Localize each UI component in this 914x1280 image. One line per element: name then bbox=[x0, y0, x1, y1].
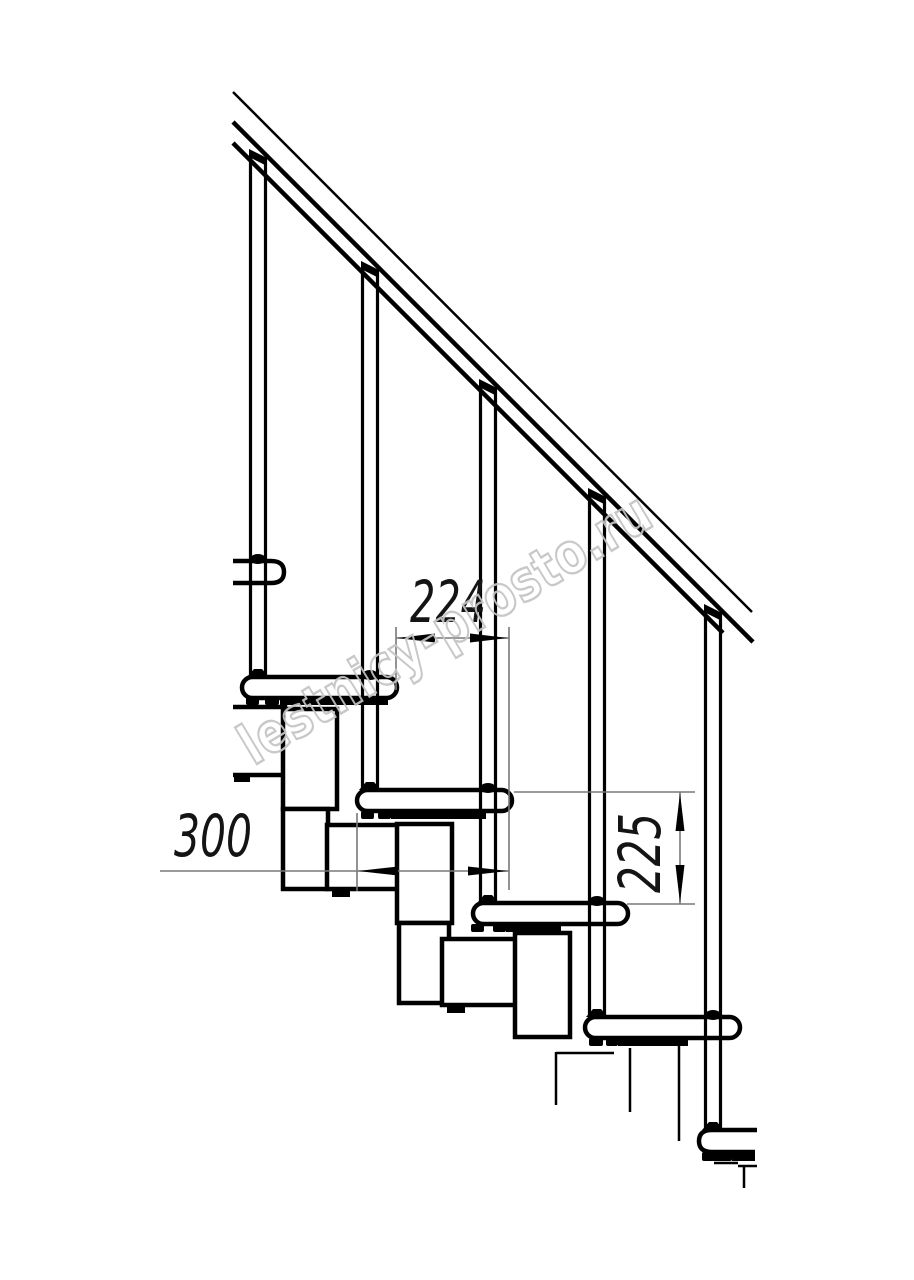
module-horizontal-2 bbox=[442, 939, 518, 1005]
handrail-top-thin-line bbox=[233, 92, 752, 612]
step-0-partial bbox=[233, 561, 284, 583]
module-corner-1 bbox=[283, 809, 328, 889]
handrail-band-bottom-edge bbox=[233, 143, 723, 633]
module-tab bbox=[447, 1006, 465, 1013]
step-nose-connector bbox=[480, 783, 496, 793]
staircase-drawing: 224 300 225 lestnicy-prosto.ru bbox=[0, 0, 914, 1280]
arrowhead-down bbox=[676, 865, 685, 903]
step-nose-connector bbox=[250, 554, 266, 564]
step-4 bbox=[585, 1017, 740, 1038]
module-tab bbox=[332, 890, 350, 897]
step-nose-connector bbox=[705, 1010, 721, 1020]
module-vertical-2 bbox=[397, 824, 452, 923]
step-nose-connector bbox=[589, 896, 605, 906]
module-horizontal-1 bbox=[327, 825, 405, 889]
step-2 bbox=[357, 790, 512, 811]
baluster-5 bbox=[702, 604, 724, 1130]
arrowhead-right bbox=[468, 867, 508, 876]
arrowhead-up bbox=[676, 793, 685, 831]
dimension-label-300: 300 bbox=[174, 802, 252, 870]
step-5-partial bbox=[699, 1130, 757, 1152]
module-vertical-3 bbox=[515, 933, 570, 1037]
baluster-1 bbox=[247, 149, 269, 677]
cropped-continuation-lines bbox=[556, 1041, 757, 1188]
hint-line bbox=[714, 1163, 757, 1188]
watermark-text: lestnicy-prosto.ru bbox=[227, 480, 663, 778]
module-tab bbox=[234, 776, 250, 782]
dimension-label-225: 225 bbox=[606, 813, 674, 893]
handrail bbox=[233, 92, 753, 642]
